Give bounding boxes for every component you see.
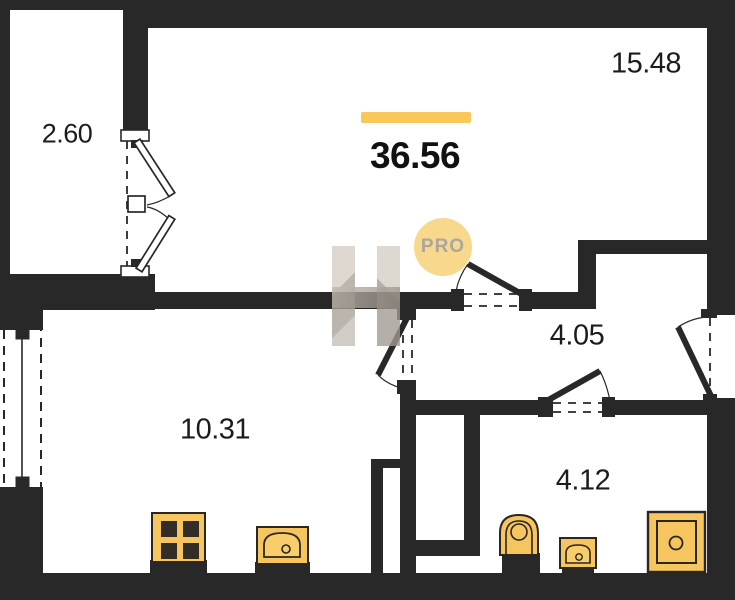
pro-watermark-badge: PRO (414, 218, 472, 276)
pro-badge-label: PRO (421, 236, 465, 258)
living-room-area-label: 15.48 (611, 48, 681, 81)
balcony-door-icon (121, 130, 175, 277)
toilet-icon (500, 515, 540, 573)
shower-tray-icon (648, 512, 705, 572)
bathroom-area-label: 4.12 (556, 465, 610, 498)
living-room-door-icon (456, 264, 525, 306)
total-area-label: 36.56 (370, 135, 460, 177)
bathroom-door-icon (543, 371, 610, 412)
total-area-accent-bar (361, 112, 471, 123)
kitchen-area-label: 10.31 (180, 414, 250, 447)
entrance-door-icon (678, 317, 711, 396)
stove-icon (150, 513, 207, 573)
watermark-letter-crossbar (332, 287, 400, 308)
kitchen-sink-icon (255, 527, 310, 573)
balcony-area-label: 2.60 (42, 119, 93, 150)
washbasin-icon (560, 538, 596, 573)
watermark-brand-letter (332, 246, 400, 346)
kitchen-window-icon (4, 322, 41, 487)
hallway-area-label: 4.05 (550, 320, 604, 353)
floorplan-canvas: PRO 36.56 2.60 15.48 10.31 4.05 4.12 (0, 0, 735, 600)
